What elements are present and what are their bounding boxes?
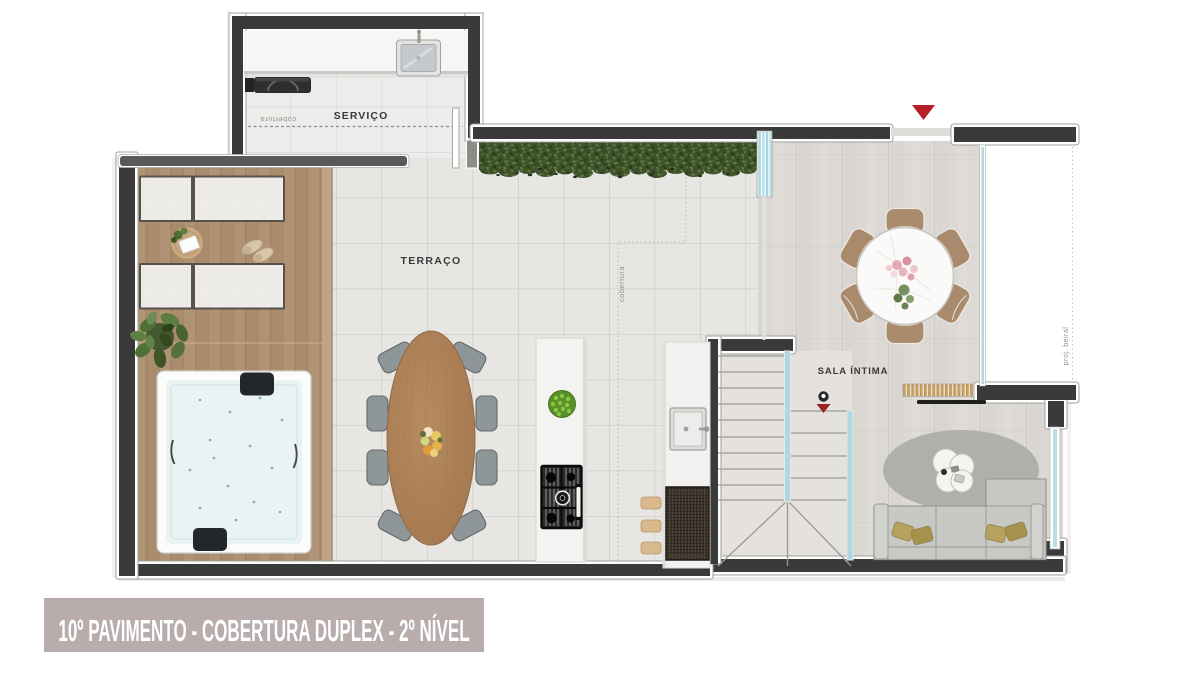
svg-text:TERRAÇO: TERRAÇO <box>400 255 461 267</box>
svg-text:SERVIÇO: SERVIÇO <box>334 110 389 122</box>
svg-text:SALA ÍNTIMA: SALA ÍNTIMA <box>818 366 889 377</box>
svg-text:cobertura: cobertura <box>260 115 297 124</box>
svg-text:proj. beiral: proj. beiral <box>1063 327 1070 366</box>
svg-text:cobertura: cobertura <box>617 266 626 303</box>
svg-text:10º PAVIMENTO - COBERTURA DUPL: 10º PAVIMENTO - COBERTURA DUPLEX - 2º NÍ… <box>58 612 469 648</box>
